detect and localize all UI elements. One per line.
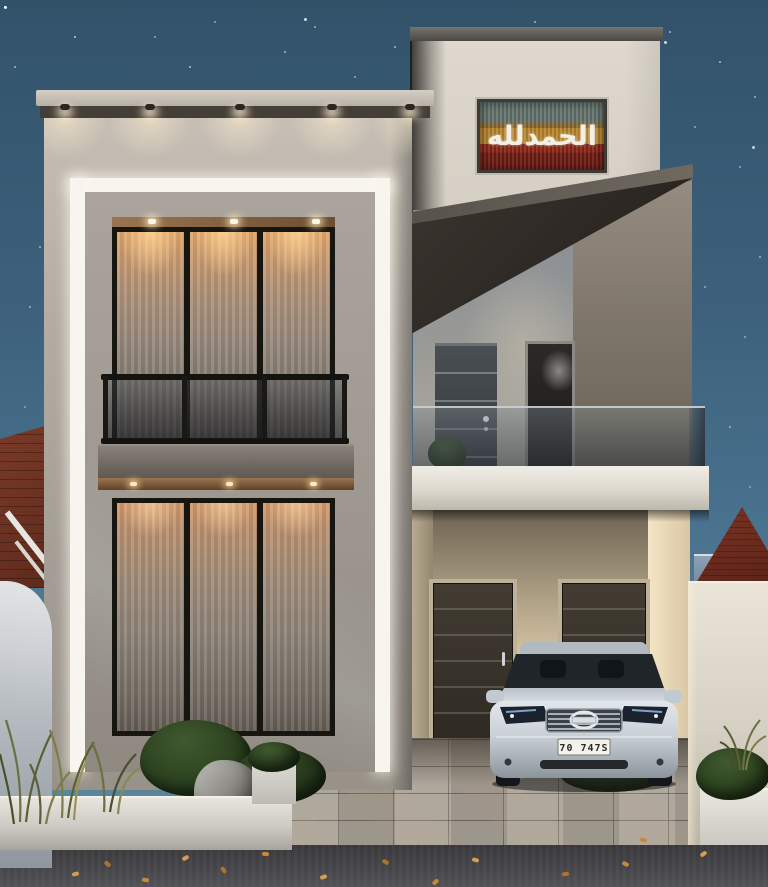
grass-tufts [0,672,160,842]
railing-post [182,376,187,440]
calligraphy-text: الحمدلله [487,121,597,152]
downlight [145,104,155,110]
downlight [327,104,337,110]
star-field-bright [4,6,7,9]
curtain-pane [190,503,257,731]
balcony-downlight [226,482,233,486]
fog-light [505,759,512,766]
calligraphy-panel: الحمدلله [477,99,607,173]
neighbor-roof-left [0,425,48,588]
window-downlight [312,219,320,224]
downlight [405,104,415,110]
car-headlight [619,706,668,724]
balcony-box [98,444,354,482]
car: 70 747S [486,640,682,792]
balcony-downlight [310,482,317,486]
car-mirror [664,690,682,703]
bumper-intake [540,760,628,769]
downlight [60,104,70,110]
glass-railing-return [689,408,705,470]
led-frame-right [375,178,390,772]
architectural-render: الحمدلله [0,0,768,887]
curtain-pane [263,503,330,731]
car-headlight [500,706,549,724]
balcony-slab [411,466,709,510]
fog-light [657,759,664,766]
balcony-slab-shadow [411,510,709,522]
headlight-spec [654,714,658,718]
railing-glass [104,380,346,438]
downlight [235,104,245,110]
eave-cap [36,90,434,106]
balcony-downlight [130,482,137,486]
car-mirror [486,690,504,703]
window-downlight [230,219,238,224]
tower-parapet-cap [410,27,663,41]
road [0,845,768,887]
grass-tuft-right [718,712,768,772]
railing-post [103,376,108,440]
led-frame-top [70,178,390,192]
car-headrest [598,660,624,678]
glass-railing [413,406,705,471]
railing-post [342,376,347,440]
headlight-spec [510,714,514,718]
car-windshield [504,654,664,688]
leaf [262,852,269,857]
railing-post [262,376,267,440]
window-downlight [148,219,156,224]
car-headrest [540,660,566,678]
car-badge-bar [572,717,596,723]
license-plate-text: 70 747S [559,743,608,754]
